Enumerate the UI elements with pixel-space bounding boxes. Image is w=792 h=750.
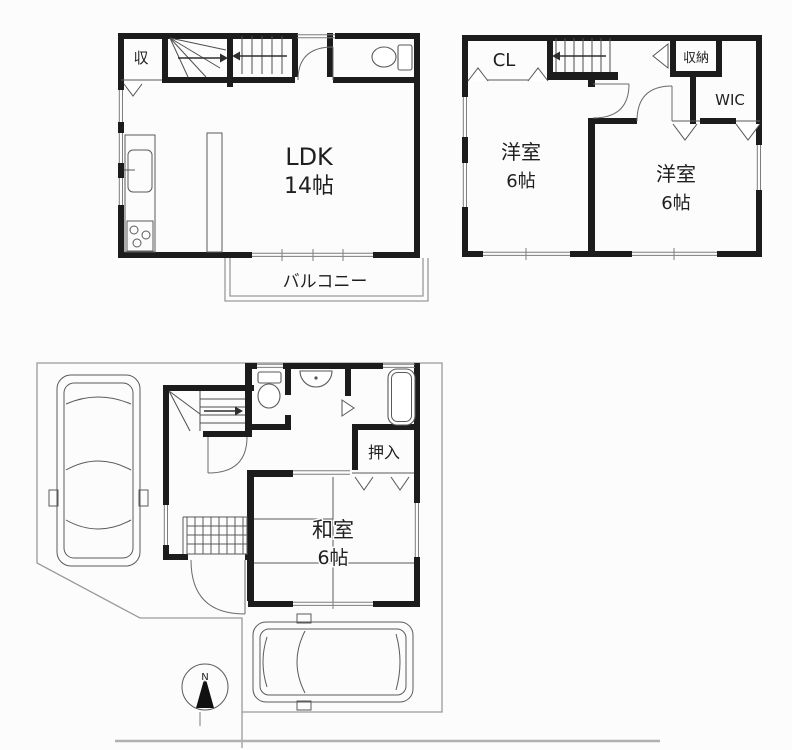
label-compass-north: N	[201, 672, 208, 683]
floor2-walls	[118, 33, 420, 258]
bedroom-left-door	[593, 84, 629, 118]
genkan-entry	[183, 517, 247, 554]
label-washitsu-size: 6帖	[317, 547, 348, 569]
folding-door-icon	[391, 477, 409, 490]
stair-arrow-icon	[235, 407, 243, 416]
floor1-site-plan: N 押入 和室 6帖	[37, 363, 660, 748]
label-bedroom-right-size: 6帖	[661, 193, 690, 214]
staircase-1f	[169, 391, 245, 431]
toilet-icon-2f	[372, 45, 412, 70]
door-arc-icon	[637, 86, 672, 121]
staircase-3f	[552, 38, 610, 72]
floor1-walls	[163, 363, 420, 607]
label-wic: WIC	[715, 91, 745, 109]
label-bedroom-left: 洋室	[501, 140, 541, 164]
folding-door-icon	[673, 124, 697, 140]
kitchen-sink-icon	[128, 150, 152, 192]
label-oshiire: 押入	[368, 443, 400, 462]
stair-door-1f	[208, 437, 247, 473]
kitchen-icons	[124, 133, 222, 252]
label-bedroom-left-size: 6帖	[506, 171, 535, 192]
toilet-icon-1f	[258, 372, 281, 408]
staircase-straight-2f	[232, 36, 287, 74]
door-arc-icon	[191, 560, 245, 614]
label-washitsu: 和室	[312, 518, 354, 542]
kitchen-peninsula-icon	[207, 133, 222, 252]
kitchen-counter-icon	[125, 135, 155, 252]
oshiire-closet	[352, 473, 414, 490]
bath-door-icon	[342, 400, 354, 416]
bathtub-icon	[388, 369, 415, 425]
car-icon-top	[49, 375, 148, 566]
floorplan-page: 収 LDK 14帖 バルコニー	[0, 0, 792, 750]
folding-door-icon	[124, 84, 142, 96]
floor1-windows	[164, 364, 418, 609]
stair-arrow-icon	[232, 52, 240, 61]
folding-door-icon	[355, 477, 373, 490]
floorplan-drawing: 収 LDK 14帖 バルコニー	[0, 0, 792, 750]
door-arc-icon	[593, 84, 629, 118]
label-ldk-size: 14帖	[284, 174, 334, 199]
label-ldk: LDK	[285, 143, 334, 171]
storage-closet-2f	[121, 80, 162, 96]
compass-icon: N	[182, 664, 228, 710]
stove-icon	[127, 221, 153, 251]
label-bedroom-right: 洋室	[656, 162, 696, 186]
washbasin-icon	[300, 371, 332, 387]
door-arc-icon	[208, 437, 247, 473]
folding-door-icon	[468, 68, 488, 81]
label-cl: CL	[493, 50, 516, 71]
floor3-plan: CL 収納 WIC 洋室 6帖 洋室 6帖	[462, 35, 762, 260]
washitsu-sliding-door	[293, 471, 350, 474]
label-balcony: バルコニー	[283, 272, 368, 292]
bedroom-right-door	[637, 86, 672, 121]
floor2-windows	[119, 35, 373, 261]
folding-door-icon	[528, 68, 548, 81]
staircase-winder-2f	[170, 38, 228, 77]
floor2-plan: 収 LDK 14帖 バルコニー	[118, 33, 428, 301]
site-boundary	[37, 363, 442, 748]
entrance-door	[191, 560, 245, 614]
stair-arrow-icon	[220, 54, 228, 63]
car-icon-bottom	[253, 614, 413, 710]
storage-3f	[653, 44, 668, 68]
label-storage-3f: 収納	[683, 51, 709, 66]
label-storage-2f: 収	[133, 49, 148, 67]
swing-door-icon	[653, 44, 668, 68]
